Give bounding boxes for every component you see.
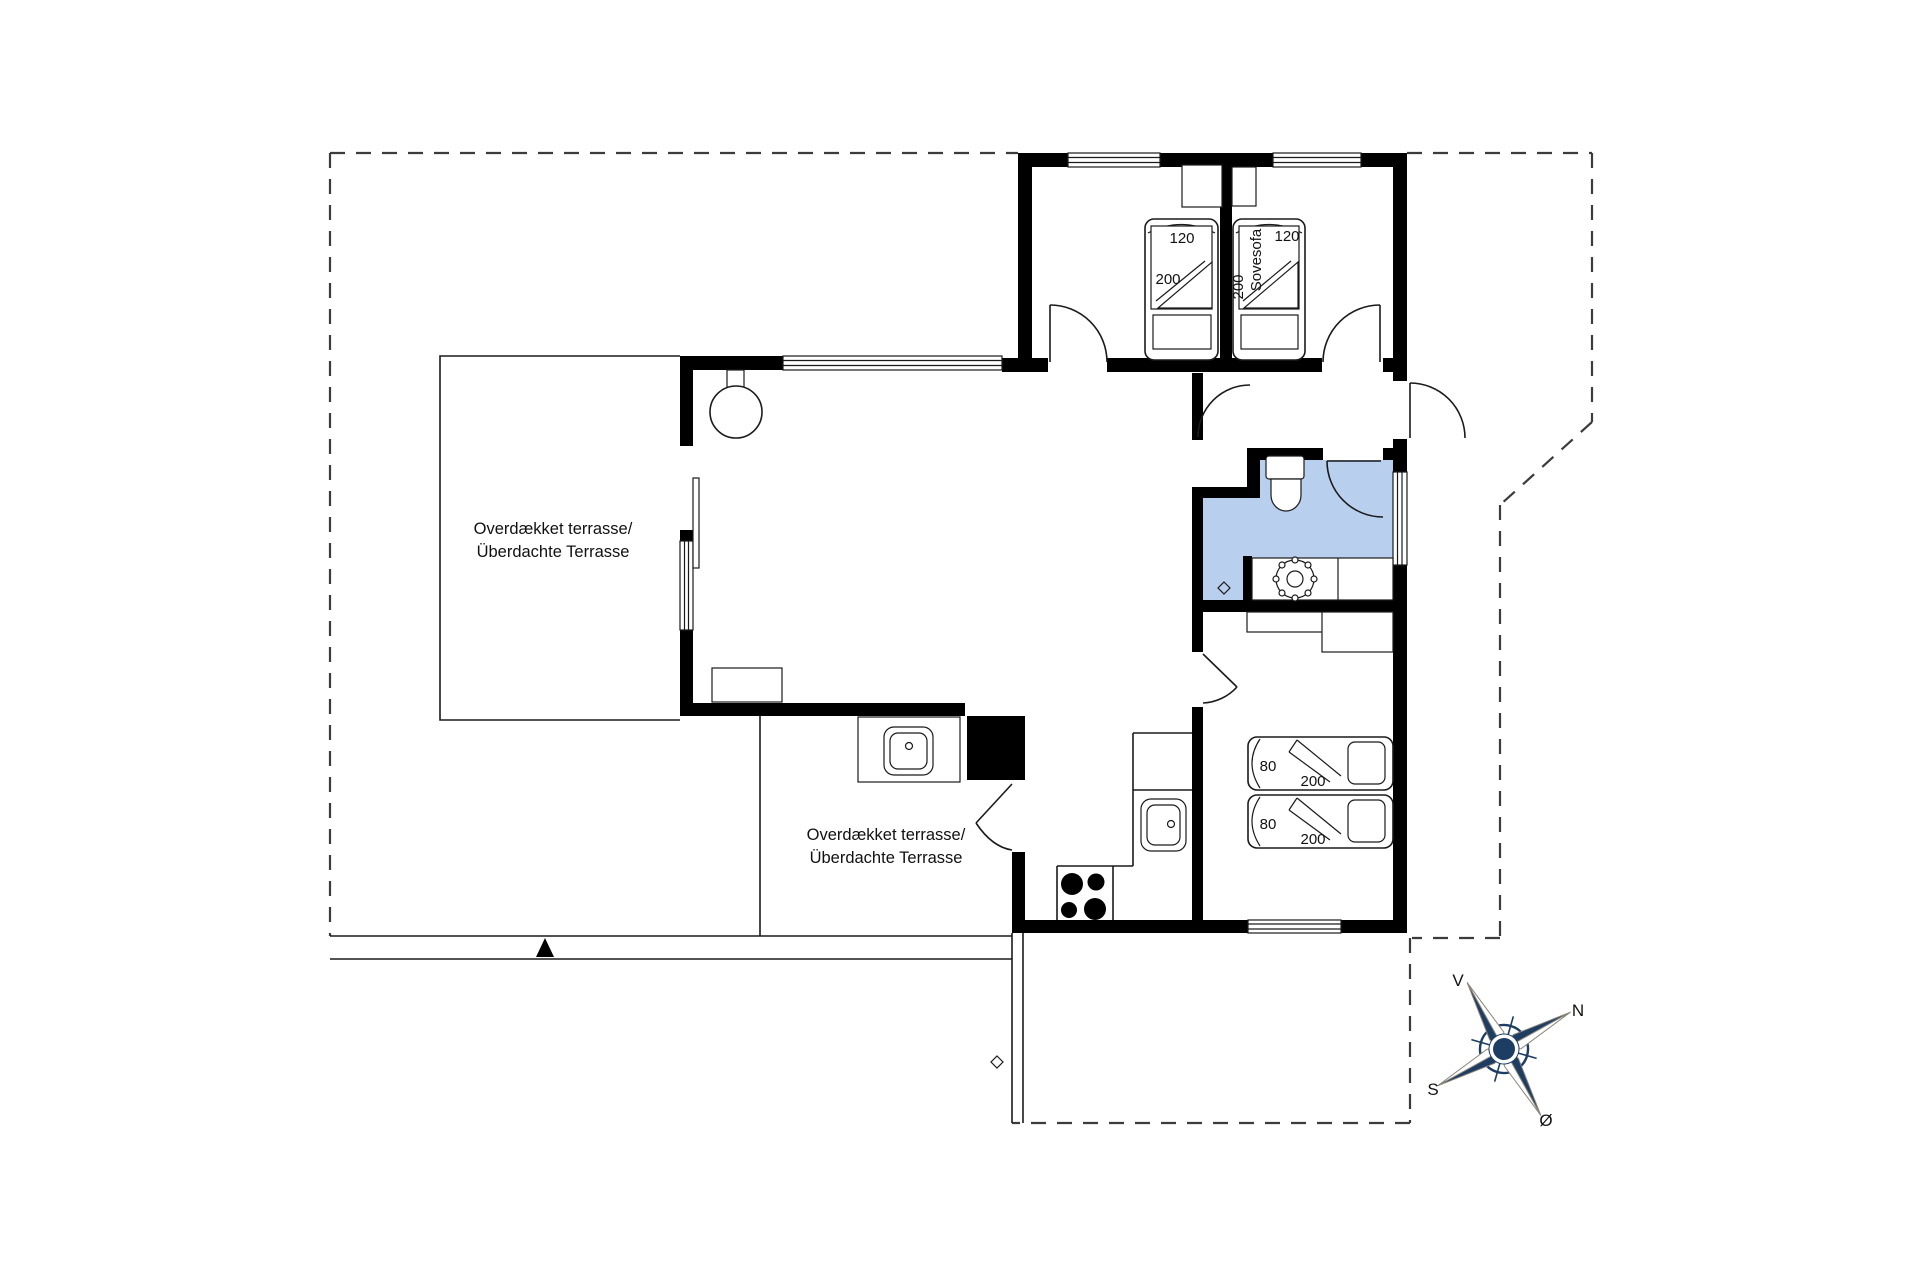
drain-symbol-icon — [991, 1056, 1003, 1068]
compass-north-label: N — [1572, 1001, 1584, 1020]
compass-east-label: Ø — [1539, 1111, 1552, 1130]
door-bedroom3-icon — [1203, 654, 1237, 703]
window-bedroom1-top-icon — [1068, 153, 1160, 167]
floor-plan-page: Overdækket terrasse/ Überdachte Terrasse… — [0, 0, 1920, 1279]
entrance-arrow-icon — [536, 938, 554, 957]
door-terrace-icon — [976, 784, 1012, 850]
bed4-length-label: 200 — [1300, 831, 1325, 848]
floor-plan-drawing: Overdækket terrasse/ Überdachte Terrasse… — [0, 0, 1920, 1279]
closet-icon — [1182, 165, 1222, 207]
compass-south-label: S — [1427, 1080, 1438, 1099]
sliding-door-panel-icon — [693, 478, 699, 568]
bed1-length-label: 200 — [1155, 271, 1180, 288]
bed2-type-label: Sovesofa — [1248, 228, 1265, 291]
kitchen — [1057, 733, 1192, 920]
bedroom1-furniture — [1145, 165, 1222, 360]
terrace-upper-label-line2: Überdachte Terrasse — [477, 543, 630, 561]
stove-icon — [1061, 873, 1106, 920]
bedroom2-furniture — [1232, 167, 1305, 360]
window-bedroom3-bottom-icon — [1248, 920, 1341, 933]
compass-west-label: V — [1452, 971, 1464, 990]
door-bedroom1-icon — [1050, 305, 1107, 362]
terrace-upper-label-line1: Overdækket terrasse/ — [474, 520, 633, 538]
bed1-width-label: 120 — [1169, 230, 1194, 247]
bed3-length-label: 200 — [1300, 773, 1325, 790]
bed2-length-label: 200 — [1230, 274, 1247, 299]
living-room-furniture — [710, 370, 960, 782]
closet-icon — [1232, 167, 1256, 206]
door-exterior-right-icon — [1410, 383, 1465, 438]
window-bedroom2-top-icon — [1273, 153, 1361, 167]
closet-icon — [1322, 612, 1393, 652]
fireplace-icon — [710, 370, 762, 438]
compass-rose: V N S Ø — [1401, 946, 1608, 1153]
window-bathroom-right-icon — [1393, 472, 1407, 565]
bed2-width-label: 120 — [1274, 228, 1299, 245]
bedroom3-furniture — [1247, 612, 1393, 848]
closet-icon — [1247, 612, 1323, 632]
terrace-lower-label-line2: Überdachte Terrasse — [810, 849, 963, 867]
bathroom-sink-icon — [1273, 557, 1317, 601]
door-hallway-icon — [1198, 385, 1250, 437]
terrace-lower-label-line1: Overdækket terrasse/ — [807, 826, 966, 844]
bed4-width-label: 80 — [1260, 816, 1277, 833]
kitchen-sink-icon — [1141, 799, 1186, 851]
sideboard — [712, 668, 782, 702]
bed3-width-label: 80 — [1260, 758, 1277, 775]
terrace-sink-icon — [858, 717, 960, 782]
window-living-top-icon — [783, 356, 1002, 370]
window-living-left-icon — [680, 541, 693, 630]
door-bedroom2-icon — [1323, 305, 1380, 362]
